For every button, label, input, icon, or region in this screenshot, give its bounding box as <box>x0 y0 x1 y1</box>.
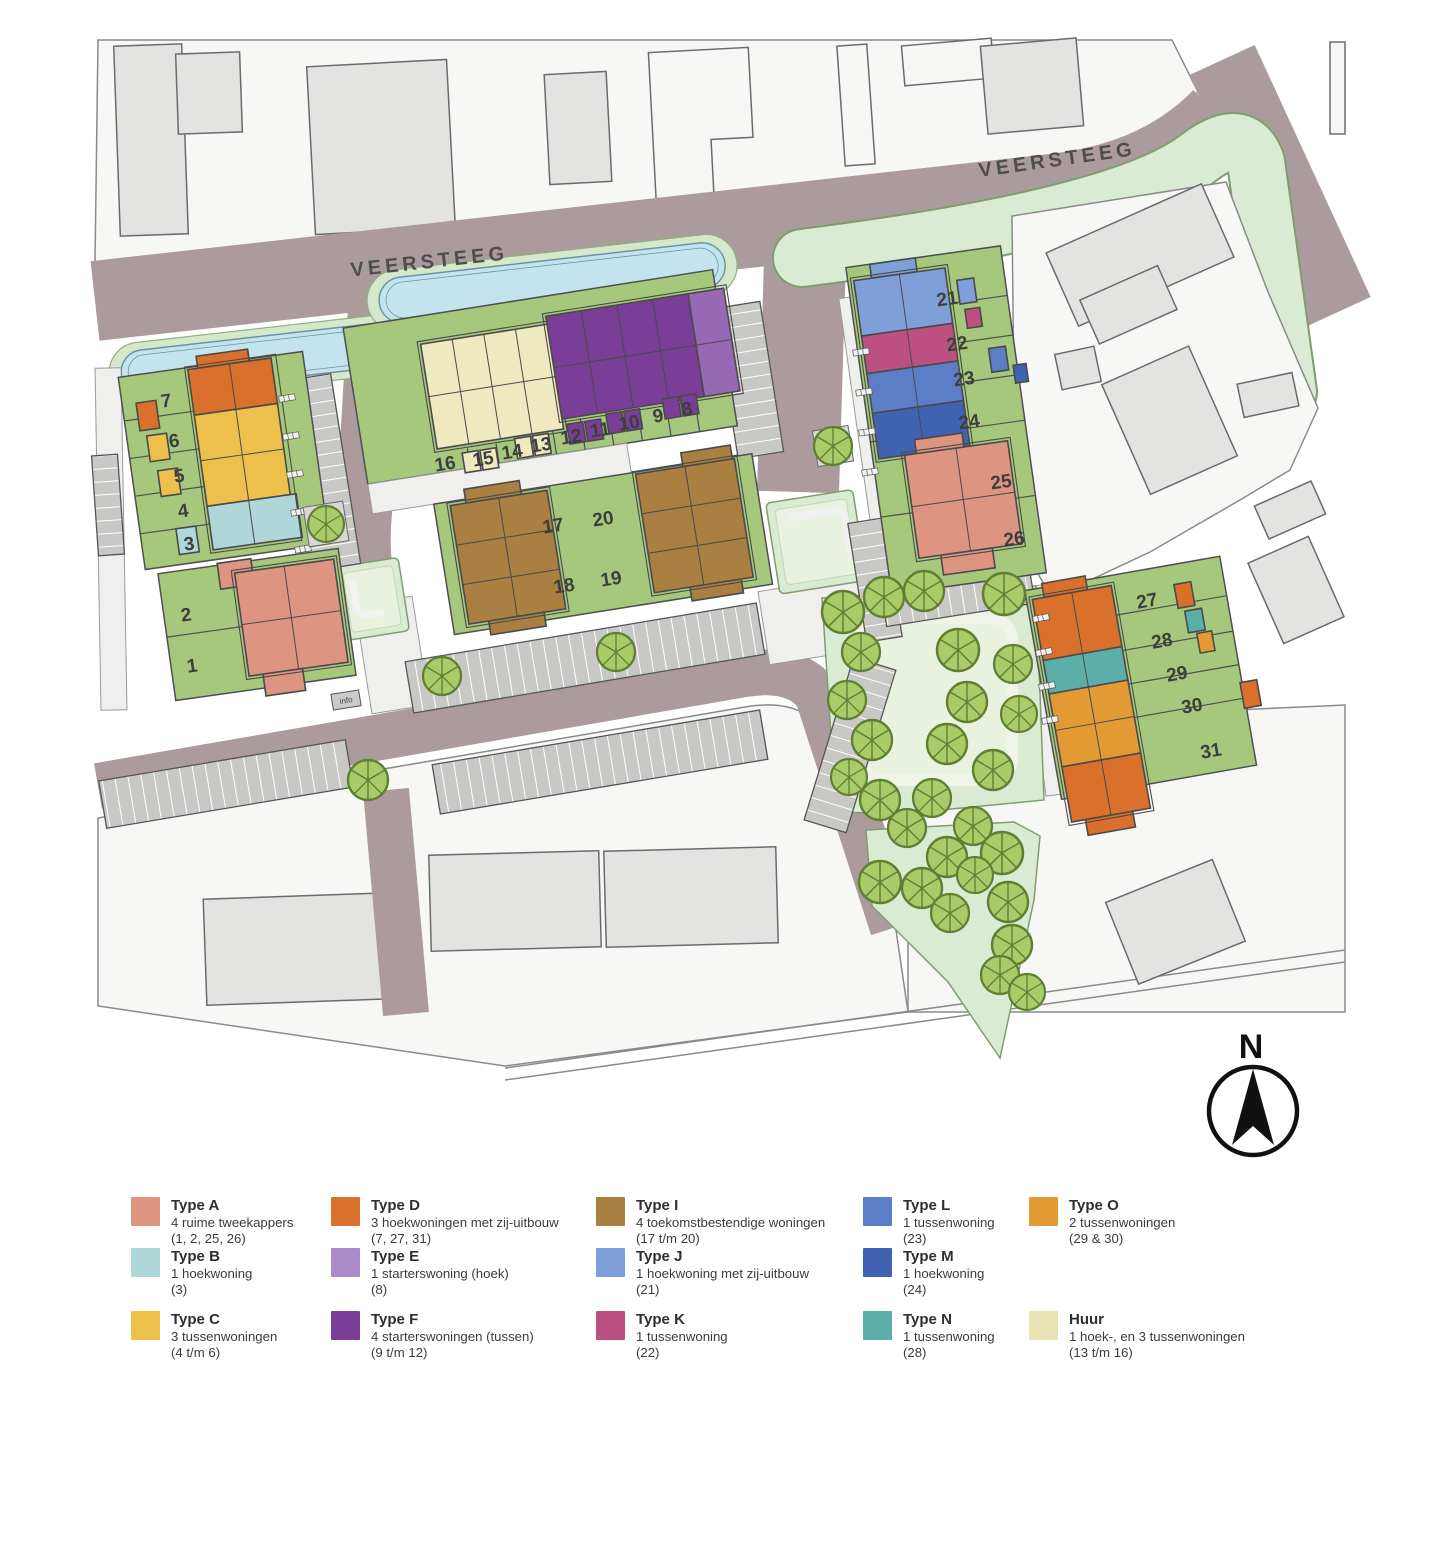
tree-icon <box>957 857 993 893</box>
legend-swatch-type-c <box>131 1311 160 1340</box>
legend-description: 4 ruime tweekappers <box>171 1215 293 1231</box>
plot-label-16: 16 <box>433 453 457 477</box>
plot-label-25: 25 <box>989 471 1013 495</box>
plot-label-18: 18 <box>552 575 576 599</box>
legend-name: Type J <box>636 1248 809 1266</box>
existing-building <box>176 52 243 134</box>
legend-description: 1 tussenwoning <box>903 1215 995 1231</box>
legend-item-type-c: Type C 3 tussenwoningen (4 t/m 6) <box>131 1311 331 1381</box>
legend-description: 3 hoekwoningen met zij-uitbouw <box>371 1215 559 1231</box>
plot-label-17: 17 <box>541 515 565 539</box>
existing-building <box>429 851 601 951</box>
legend-plots: (29 & 30) <box>1069 1231 1175 1247</box>
existing-building <box>901 38 994 86</box>
shed <box>957 278 977 304</box>
legend-name: Type A <box>171 1197 293 1215</box>
existing-building <box>1330 42 1345 134</box>
legend-plots: (13 t/m 16) <box>1069 1345 1245 1361</box>
tree-icon <box>859 861 901 903</box>
legend-swatch-type-m <box>863 1248 892 1277</box>
legend-name: Type C <box>171 1311 277 1329</box>
legend-description: 1 hoekwoning <box>903 1266 984 1282</box>
legend-item-type-n: Type N 1 tussenwoning (28) <box>863 1311 1029 1381</box>
legend-description: 1 tussenwoning <box>903 1329 995 1345</box>
legend-plots: (8) <box>371 1282 509 1298</box>
compass: N <box>1209 1028 1297 1155</box>
legend-name: Type N <box>903 1311 995 1329</box>
legend-swatch-type-a <box>131 1197 160 1226</box>
plot-label-19: 19 <box>599 568 623 592</box>
plot-label-30: 30 <box>1180 694 1204 718</box>
tree-icon <box>988 882 1028 922</box>
legend-item-huur: Huur 1 hoek-, en 3 tussenwoningen (13 t/… <box>1029 1311 1279 1381</box>
legend-name: Type M <box>903 1248 984 1266</box>
tree-icon <box>822 591 864 633</box>
tree-icon <box>864 577 904 617</box>
plot-label-14: 14 <box>500 440 525 464</box>
tree-icon <box>814 427 852 465</box>
tree-icon <box>597 633 635 671</box>
plot-label-29: 29 <box>1165 662 1189 686</box>
legend-name: Type I <box>636 1197 825 1215</box>
existing-building <box>203 893 393 1005</box>
tree-icon <box>931 894 969 932</box>
legend-plots: (3) <box>171 1282 252 1298</box>
plot-label-15: 15 <box>471 447 496 471</box>
existing-building <box>980 38 1083 134</box>
existing-building <box>1254 481 1325 539</box>
legend-item-type-b: Type B 1 hoekwoning (3) <box>131 1248 331 1311</box>
legend-swatch-type-e <box>331 1248 360 1277</box>
legend-swatch-type-o <box>1029 1197 1058 1226</box>
tree-icon <box>888 809 926 847</box>
legend-item-type-j: Type J 1 hoekwoning met zij-uitbouw (21) <box>596 1248 863 1311</box>
legend-name: Type K <box>636 1311 728 1329</box>
legend-swatch-huur <box>1029 1311 1058 1340</box>
legend-swatch-type-n <box>863 1311 892 1340</box>
plot-label-12: 12 <box>559 426 583 450</box>
legend-name: Type D <box>371 1197 559 1215</box>
legend-plots: (7, 27, 31) <box>371 1231 559 1247</box>
tree-icon <box>1001 696 1037 732</box>
plot-label-22: 22 <box>945 333 969 357</box>
plot-label-31: 31 <box>1199 739 1224 763</box>
tree-icon <box>1009 974 1045 1010</box>
existing-building <box>307 59 456 234</box>
legend-plots: (22) <box>636 1345 728 1361</box>
legend-plots: (24) <box>903 1282 984 1298</box>
legend-name: Type E <box>371 1248 509 1266</box>
tree-icon <box>947 682 987 722</box>
legend-item-type-d: Type D 3 hoekwoningen met zij-uitbouw (7… <box>331 1197 596 1248</box>
legend-item-type-e: Type E 1 starterswoning (hoek) (8) <box>331 1248 596 1311</box>
legend-description: 1 hoekwoning met zij-uitbouw <box>636 1266 809 1282</box>
shed <box>1197 631 1215 653</box>
legend-swatch-type-j <box>596 1248 625 1277</box>
site-plan-page: info VEERSTEEG VEERSTEEG 1 2 3 4 5 6 7 8… <box>0 0 1440 1544</box>
plot-label-23: 23 <box>952 368 976 392</box>
tree-icon <box>973 750 1013 790</box>
legend-plots: (17 t/m 20) <box>636 1231 825 1247</box>
legend-swatch-type-f <box>331 1311 360 1340</box>
legend-plots: (1, 2, 25, 26) <box>171 1231 293 1247</box>
tree-icon <box>423 657 461 695</box>
legend-swatch-type-i <box>596 1197 625 1226</box>
tree-icon <box>348 760 388 800</box>
legend-plots: (4 t/m 6) <box>171 1345 277 1361</box>
legend-plots: (9 t/m 12) <box>371 1345 534 1361</box>
shed <box>1185 608 1206 633</box>
legend-plots: (21) <box>636 1282 809 1298</box>
legend-name: Huur <box>1069 1311 1245 1329</box>
legend-item-type-a: Type A 4 ruime tweekappers (1, 2, 25, 26… <box>131 1197 331 1248</box>
compass-north-label: N <box>1239 1028 1264 1066</box>
tree-icon <box>937 629 979 671</box>
plot-label-11: 11 <box>589 419 613 443</box>
plot-label-21: 21 <box>935 288 959 312</box>
shed <box>1240 680 1261 709</box>
plot-label-20: 20 <box>591 508 615 532</box>
existing-building <box>544 71 612 184</box>
legend-description: 1 hoekwoning <box>171 1266 252 1282</box>
shed <box>263 669 306 696</box>
plot-label-13: 13 <box>529 434 553 458</box>
shed <box>1013 363 1028 383</box>
legend-description: 1 starterswoning (hoek) <box>371 1266 509 1282</box>
plot-label-10: 10 <box>617 412 641 436</box>
legend-description: 3 tussenwoningen <box>171 1329 277 1345</box>
tree-icon <box>308 506 344 542</box>
plot-label-28: 28 <box>1150 629 1174 653</box>
legend-swatch-type-k <box>596 1311 625 1340</box>
tree-icon <box>842 633 880 671</box>
legend-item-type-i: Type I 4 toekomstbestendige woningen (17… <box>596 1197 863 1248</box>
tree-icon <box>994 645 1032 683</box>
legend-item-type-o: Type O 2 tussenwoningen (29 & 30) <box>1029 1197 1279 1248</box>
legend-description: 4 starterswoningen (tussen) <box>371 1329 534 1345</box>
plot-label-27: 27 <box>1135 589 1159 613</box>
tree-icon <box>852 720 892 760</box>
legend-description: 1 tussenwoning <box>636 1329 728 1345</box>
legend-item-type-k: Type K 1 tussenwoning (22) <box>596 1311 863 1381</box>
legend: Type A 4 ruime tweekappers (1, 2, 25, 26… <box>131 1197 1279 1381</box>
shed <box>1174 582 1195 609</box>
info-sign: info <box>331 690 361 710</box>
tree-icon <box>828 681 866 719</box>
legend-item-type-f: Type F 4 starterswoningen (tussen) (9 t/… <box>331 1311 596 1381</box>
street-south-branch <box>386 790 406 1014</box>
plot-label-26: 26 <box>1002 528 1026 552</box>
tree-icon <box>904 571 944 611</box>
legend-name: Type O <box>1069 1197 1175 1215</box>
existing-building <box>1055 346 1102 390</box>
legend-name: Type L <box>903 1197 995 1215</box>
legend-swatch-type-d <box>331 1197 360 1226</box>
legend-item-type-l: Type L 1 tussenwoning (23) <box>863 1197 1029 1248</box>
legend-description: 2 tussenwoningen <box>1069 1215 1175 1231</box>
legend-swatch-type-l <box>863 1197 892 1226</box>
tree-icon <box>983 573 1025 615</box>
shed <box>965 307 982 328</box>
legend-description: 4 toekomstbestendige woningen <box>636 1215 825 1231</box>
legend-swatch-type-b <box>131 1248 160 1277</box>
existing-building <box>604 847 778 947</box>
site-plan-map: info VEERSTEEG VEERSTEEG 1 2 3 4 5 6 7 8… <box>0 0 1440 1190</box>
legend-plots: (23) <box>903 1231 995 1247</box>
plot-label-24: 24 <box>957 411 981 435</box>
shed <box>989 346 1009 372</box>
shed <box>147 433 170 462</box>
tree-icon <box>913 779 951 817</box>
tree-icon <box>927 724 967 764</box>
legend-item-type-m: Type M 1 hoekwoning (24) <box>863 1248 1029 1311</box>
legend-plots: (28) <box>903 1345 995 1361</box>
existing-building <box>1248 536 1344 643</box>
legend-name: Type B <box>171 1248 252 1266</box>
legend-description: 1 hoek-, en 3 tussenwoningen <box>1069 1329 1245 1345</box>
shed <box>662 397 681 419</box>
shed <box>136 400 160 431</box>
legend-name: Type F <box>371 1311 534 1329</box>
legend-spacer <box>1029 1248 1279 1311</box>
